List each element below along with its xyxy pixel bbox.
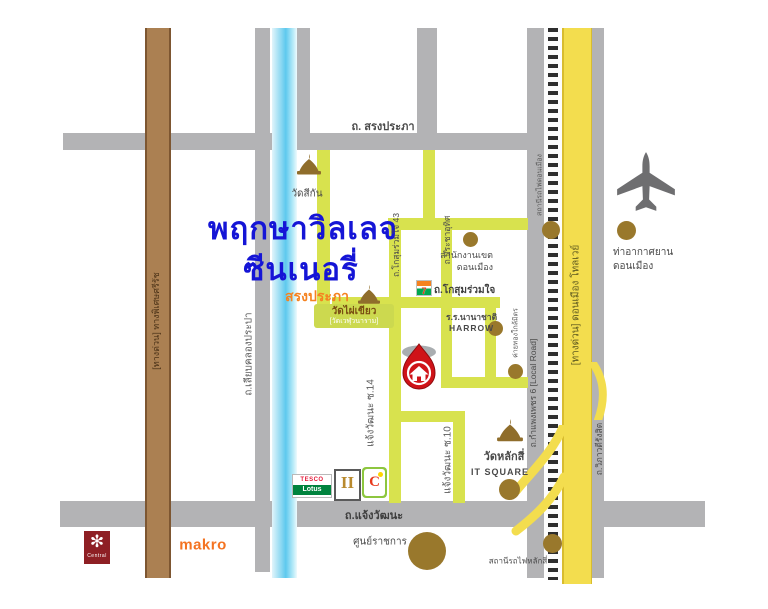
label-don-mueang-tollway: [ทางด่วน] ดอนเมือง โทลเวย์ bbox=[569, 245, 584, 365]
label-chaengwattana: ถ.แจ้งวัฒนะ bbox=[345, 506, 403, 524]
street-horizontal-a bbox=[388, 218, 528, 230]
label-soi14: แจ้งวัฒนะ ซ.14 bbox=[364, 379, 379, 447]
location-map: พฤกษาวิลเลจ ซีนเนอรี่ สรงประภา ถ. สรงประ… bbox=[0, 0, 768, 609]
home-location-marker bbox=[396, 340, 442, 398]
label-airport-line2: ดอนเมือง bbox=[613, 260, 673, 274]
label-airport-line1: ท่าอากาศยาน bbox=[613, 246, 673, 260]
wat-phai-khiao-label-box: วัดไผ่เขียว [วัดเวฬุวนาราม] bbox=[314, 304, 394, 328]
label-it-square: IT SQUARE bbox=[471, 467, 529, 477]
label-kosum43: ถ.โกสุมร่วมใจ 43 bbox=[389, 213, 403, 277]
label-airport: ท่าอากาศยาน ดอนเมือง bbox=[613, 246, 673, 274]
dot-lak-si-station bbox=[543, 534, 562, 553]
label-wat-phai-khiao: วัดไผ่เขียว bbox=[317, 306, 391, 318]
label-srirat-expressway: [ทางด่วน] ทางพิเศษศรีรัช bbox=[149, 272, 163, 369]
label-harrow: ร.ร.นานาชาติ HARROW bbox=[446, 312, 497, 334]
pillars-logo: II bbox=[334, 469, 361, 501]
label-kosum-ruam-chai: ถ.โกสุมร่วมใจ bbox=[434, 283, 495, 298]
dot-district-office bbox=[463, 232, 478, 247]
central-text: Central bbox=[84, 553, 110, 559]
dot-don-mueang-station bbox=[542, 221, 560, 239]
dot-it-square bbox=[499, 479, 520, 500]
seven-eleven-icon: 7 bbox=[416, 280, 432, 296]
label-harrow-line1: ร.ร.นานาชาติ bbox=[446, 312, 497, 323]
central-flower-icon: ✻ bbox=[84, 531, 110, 553]
wat-sikan-icon bbox=[296, 152, 322, 178]
wat-lak-si-icon bbox=[496, 417, 524, 445]
label-liap-khlong-prapa: ถ.เลียบคลองประปา bbox=[242, 312, 257, 395]
big-c-logo: C bbox=[362, 467, 387, 498]
dot-airport bbox=[617, 221, 636, 240]
big-c-inner: C bbox=[364, 469, 385, 496]
label-wat-lak-si: วัดหลักสี่ bbox=[484, 447, 525, 465]
airplane-icon bbox=[612, 150, 680, 216]
wat-phai-khiao-icon bbox=[357, 284, 381, 306]
label-wat-sikan: วัดสีกัน bbox=[291, 187, 322, 202]
lotus-text: Lotus bbox=[293, 485, 331, 495]
label-vibhavadi: ถ.วิภาวดีรังสิต bbox=[592, 423, 606, 475]
tesco-text: TESCO bbox=[293, 475, 331, 485]
makro-logo: makro bbox=[179, 537, 227, 554]
road-liap-khlong-prapa bbox=[255, 28, 270, 572]
label-government-center: ศูนย์ราชการ bbox=[353, 535, 407, 550]
central-logo: ✻ Central bbox=[84, 531, 110, 564]
label-khai-thong: ค่ายทองใกล้มิตร bbox=[511, 308, 522, 358]
tesco-lotus-logo: TESCO Lotus bbox=[292, 474, 332, 498]
label-kamphaengphet6: ถ.กำแพงเพชร 6 [Local Road] bbox=[526, 339, 540, 448]
label-don-mueang-station: สถานีรถไฟดอนเมือง bbox=[535, 154, 546, 216]
label-district-office: สำนักงานเขต ดอนเมือง bbox=[433, 249, 493, 273]
label-district-office-line2: ดอนเมือง bbox=[433, 261, 493, 273]
label-song-prapha: ถ. สรงประภา bbox=[352, 117, 415, 135]
seven-eleven-digit: 7 bbox=[421, 286, 426, 296]
tollway-exit-ramp bbox=[588, 362, 614, 420]
dot-khai-thong bbox=[508, 364, 523, 379]
label-soi10: แจ้งวัฒนะ ซ.10 bbox=[441, 426, 456, 494]
label-harrow-line2: HARROW bbox=[446, 323, 497, 334]
label-lak-si-station: สถานีรถไฟหลักสี่ bbox=[489, 555, 547, 568]
label-district-office-line1: สำนักงานเขต bbox=[433, 249, 493, 261]
road-north-stub bbox=[417, 28, 437, 135]
label-wat-phai-khiao-alt: [วัดเวฬุวนาราม] bbox=[317, 318, 391, 326]
big-c-spark bbox=[378, 472, 383, 477]
dot-government-center bbox=[408, 532, 446, 570]
